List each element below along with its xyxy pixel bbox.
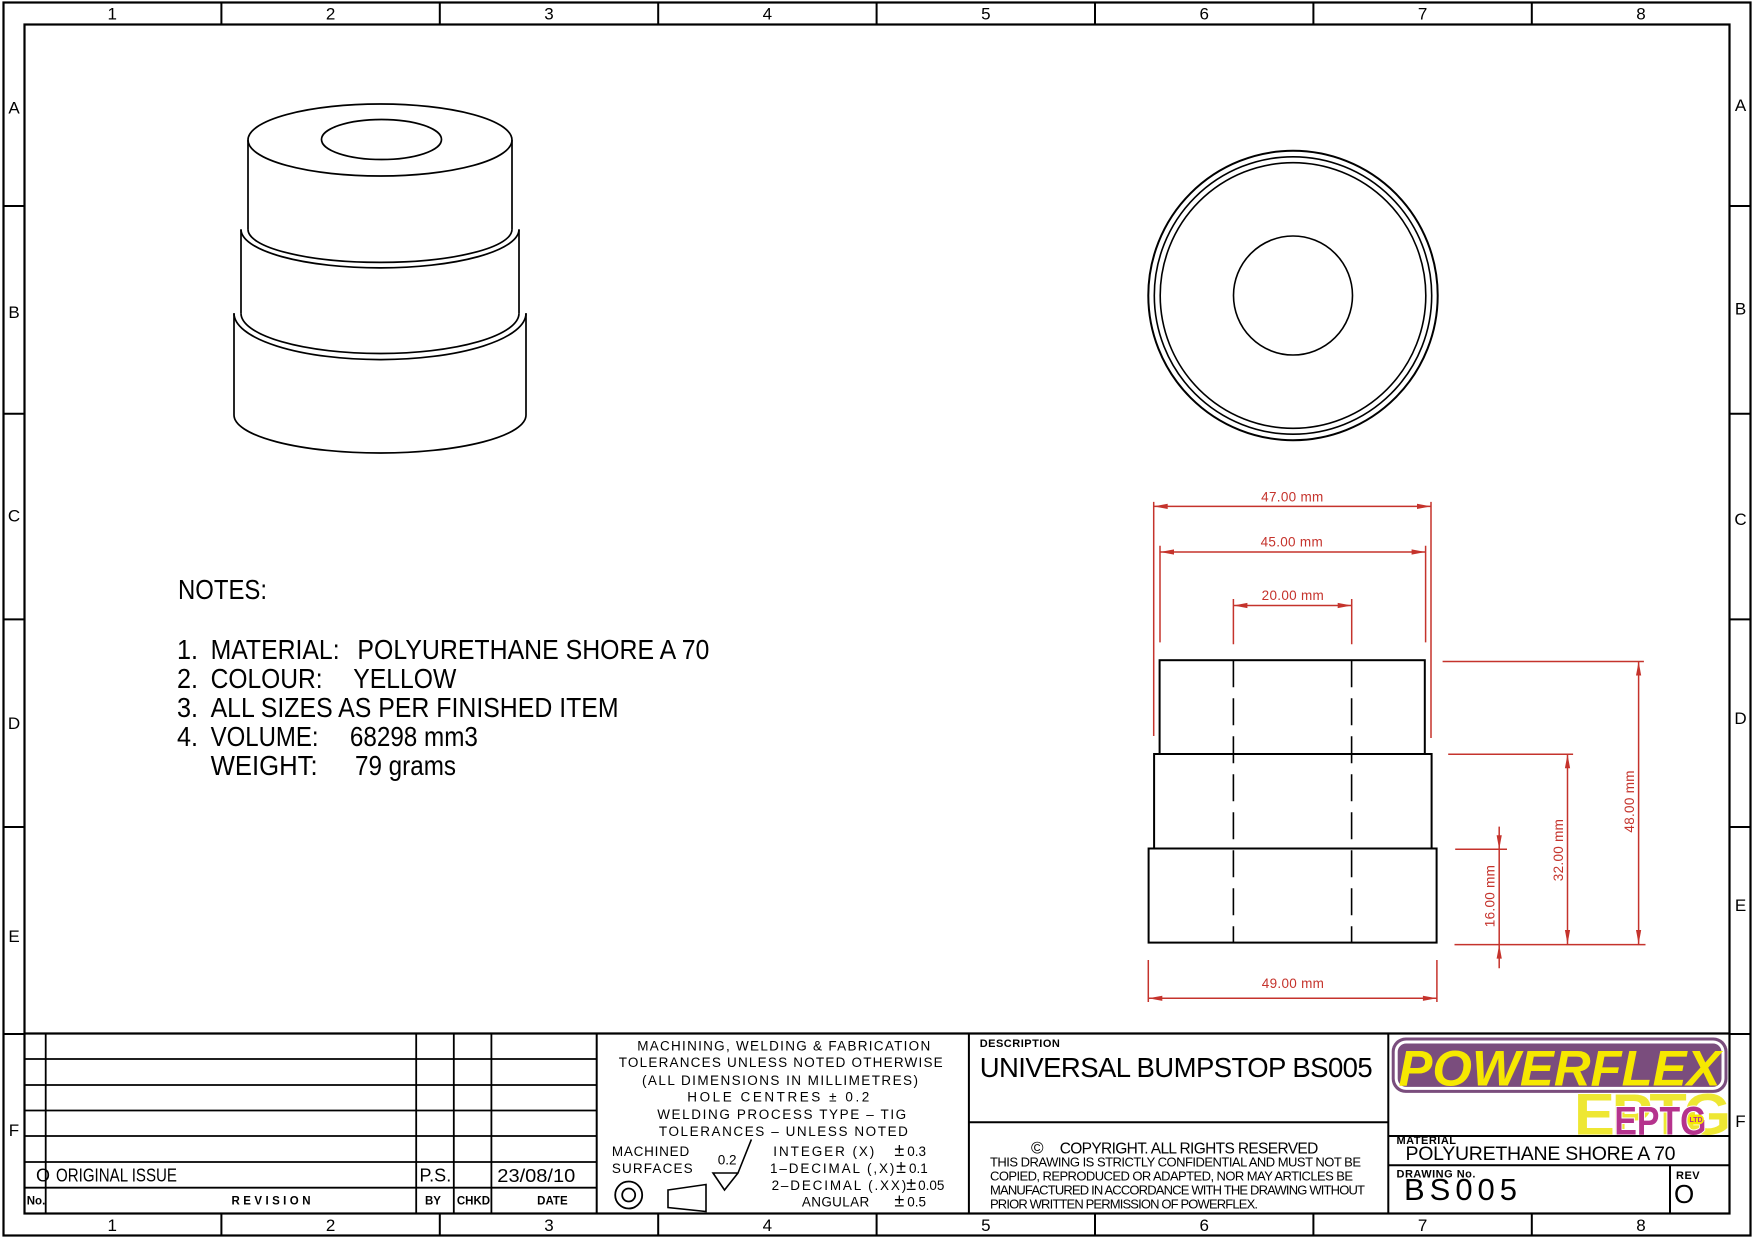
- svg-text:C: C: [8, 507, 20, 526]
- svg-text:E: E: [8, 927, 19, 946]
- svg-text:8: 8: [1636, 1216, 1645, 1235]
- svg-text:F: F: [1735, 1112, 1745, 1131]
- svg-text:1: 1: [107, 1216, 116, 1235]
- svg-text:B: B: [1735, 300, 1746, 319]
- svg-text:1.: 1.: [177, 634, 198, 665]
- svg-text:45.00 mm: 45.00 mm: [1261, 535, 1323, 550]
- svg-text:32.00 mm: 32.00 mm: [1551, 819, 1566, 881]
- svg-text:LTD: LTD: [1689, 1117, 1702, 1124]
- svg-text:23/08/10: 23/08/10: [497, 1166, 575, 1186]
- svg-text:BS005: BS005: [1404, 1172, 1517, 1207]
- svg-text:7: 7: [1418, 1216, 1427, 1235]
- svg-text:3.: 3.: [177, 692, 198, 723]
- svg-text:O: O: [1674, 1179, 1694, 1209]
- svg-text:MANUFACTURED IN ACCORDANCE: MANUFACTURED IN ACCORDANCE WITH THE DRAW…: [990, 1183, 1365, 1198]
- svg-text:3: 3: [544, 1216, 553, 1235]
- svg-text:ALL SIZES AS PER FINISHED ITEM: ALL SIZES AS PER FINISHED ITEM: [211, 692, 619, 723]
- svg-text:1–DECIMAL (,X): 1–DECIMAL (,X): [770, 1161, 894, 1176]
- svg-text:D: D: [1734, 709, 1746, 728]
- svg-text:DESCRIPTION: DESCRIPTION: [980, 1038, 1061, 1050]
- svg-text:68298 mm3: 68298 mm3: [350, 721, 478, 752]
- svg-text:2–DECIMAL (.XX): 2–DECIMAL (.XX): [772, 1178, 907, 1193]
- svg-text:COLOUR:: COLOUR:: [211, 663, 323, 694]
- svg-text:2.: 2.: [177, 663, 198, 694]
- svg-text:F: F: [9, 1121, 19, 1140]
- svg-text:INTEGER (X): INTEGER (X): [773, 1144, 874, 1159]
- svg-text:A: A: [8, 99, 20, 118]
- svg-text:6: 6: [1199, 5, 1208, 24]
- svg-text:5: 5: [981, 5, 990, 24]
- svg-text:SURFACES: SURFACES: [612, 1161, 693, 1176]
- svg-text:5: 5: [981, 1216, 990, 1235]
- svg-text:TOLERANCES – UNLESS NOTED: TOLERANCES – UNLESS NOTED: [659, 1124, 908, 1139]
- svg-text:WELDING PROCESS TYPE – TIG: WELDING PROCESS TYPE – TIG: [657, 1107, 906, 1122]
- svg-text:No.: No.: [27, 1196, 46, 1208]
- svg-text:A: A: [1735, 96, 1747, 115]
- svg-text:YELLOW: YELLOW: [353, 663, 457, 694]
- svg-text:TOLERANCES UNLESS NOTED OTHERW: TOLERANCES UNLESS NOTED OTHERWISE: [619, 1055, 943, 1070]
- svg-text:NOTES:: NOTES:: [178, 574, 267, 605]
- svg-text:79 grams: 79 grams: [355, 750, 456, 781]
- svg-text:CHKD: CHKD: [457, 1196, 490, 1208]
- svg-text:2: 2: [326, 5, 335, 24]
- svg-text:4: 4: [763, 1216, 772, 1235]
- svg-text:MACHINING, WELDING & FABRICATI: MACHINING, WELDING & FABRICATION: [637, 1038, 930, 1053]
- svg-text:WEIGHT:: WEIGHT:: [211, 750, 318, 781]
- svg-text:2: 2: [326, 1216, 335, 1235]
- svg-text:UNIVERSAL BUMPSTOP BS005: UNIVERSAL BUMPSTOP BS005: [980, 1052, 1373, 1083]
- svg-text:4: 4: [763, 5, 772, 24]
- svg-text:POLYURETHANE SHORE A 70: POLYURETHANE SHORE A 70: [357, 634, 709, 665]
- svg-text:P.S.: P.S.: [420, 1166, 452, 1186]
- svg-text:POLYURETHANE SHORE A 70: POLYURETHANE SHORE A 70: [1406, 1143, 1676, 1165]
- svg-text:6: 6: [1199, 1216, 1208, 1235]
- svg-text:O: O: [36, 1166, 50, 1186]
- svg-text:MATERIAL:: MATERIAL:: [211, 634, 340, 665]
- svg-text:7: 7: [1418, 5, 1427, 24]
- svg-text:E: E: [1735, 896, 1746, 915]
- svg-text:DATE: DATE: [537, 1196, 568, 1208]
- svg-text:49.00 mm: 49.00 mm: [1262, 976, 1324, 991]
- svg-text:8: 8: [1636, 5, 1645, 24]
- svg-text:0.2: 0.2: [718, 1153, 737, 1168]
- svg-text:THIS DRAWING IS STRICTLY C: THIS DRAWING IS STRICTLY CONFIDENTIAL AN…: [990, 1155, 1361, 1170]
- svg-text:BY: BY: [425, 1196, 441, 1208]
- svg-text:20.00 mm: 20.00 mm: [1262, 588, 1324, 603]
- svg-text:VOLUME:: VOLUME:: [211, 721, 319, 752]
- svg-text:C: C: [1734, 510, 1746, 529]
- svg-text:3: 3: [544, 5, 553, 24]
- svg-text:COPIED, REPRODUCED OR ADAPT: COPIED, REPRODUCED OR ADAPTED, NOR MAY A…: [990, 1169, 1353, 1184]
- svg-text:(ALL DIMENSIONS IN MILLIMETRES: (ALL DIMENSIONS IN MILLIMETRES): [642, 1073, 918, 1088]
- svg-text:16.00 mm: 16.00 mm: [1483, 865, 1498, 927]
- svg-text:ANGULAR: ANGULAR: [802, 1195, 870, 1210]
- svg-text:ORIGINAL ISSUE: ORIGINAL ISSUE: [56, 1166, 177, 1186]
- svg-text:MACHINED: MACHINED: [612, 1144, 690, 1159]
- svg-text:D: D: [8, 714, 20, 733]
- svg-text:PRIOR WRITTEN PERMISSION OF: PRIOR WRITTEN PERMISSION OF POWERFLEX.: [990, 1197, 1258, 1212]
- svg-text:48.00 mm: 48.00 mm: [1622, 770, 1637, 832]
- svg-text:HOLE CENTRES ± 0.2: HOLE CENTRES ± 0.2: [687, 1090, 869, 1105]
- svg-text:B: B: [8, 303, 19, 322]
- svg-text:47.00 mm: 47.00 mm: [1261, 489, 1323, 504]
- svg-text:4.: 4.: [177, 721, 198, 752]
- svg-text:1: 1: [107, 5, 116, 24]
